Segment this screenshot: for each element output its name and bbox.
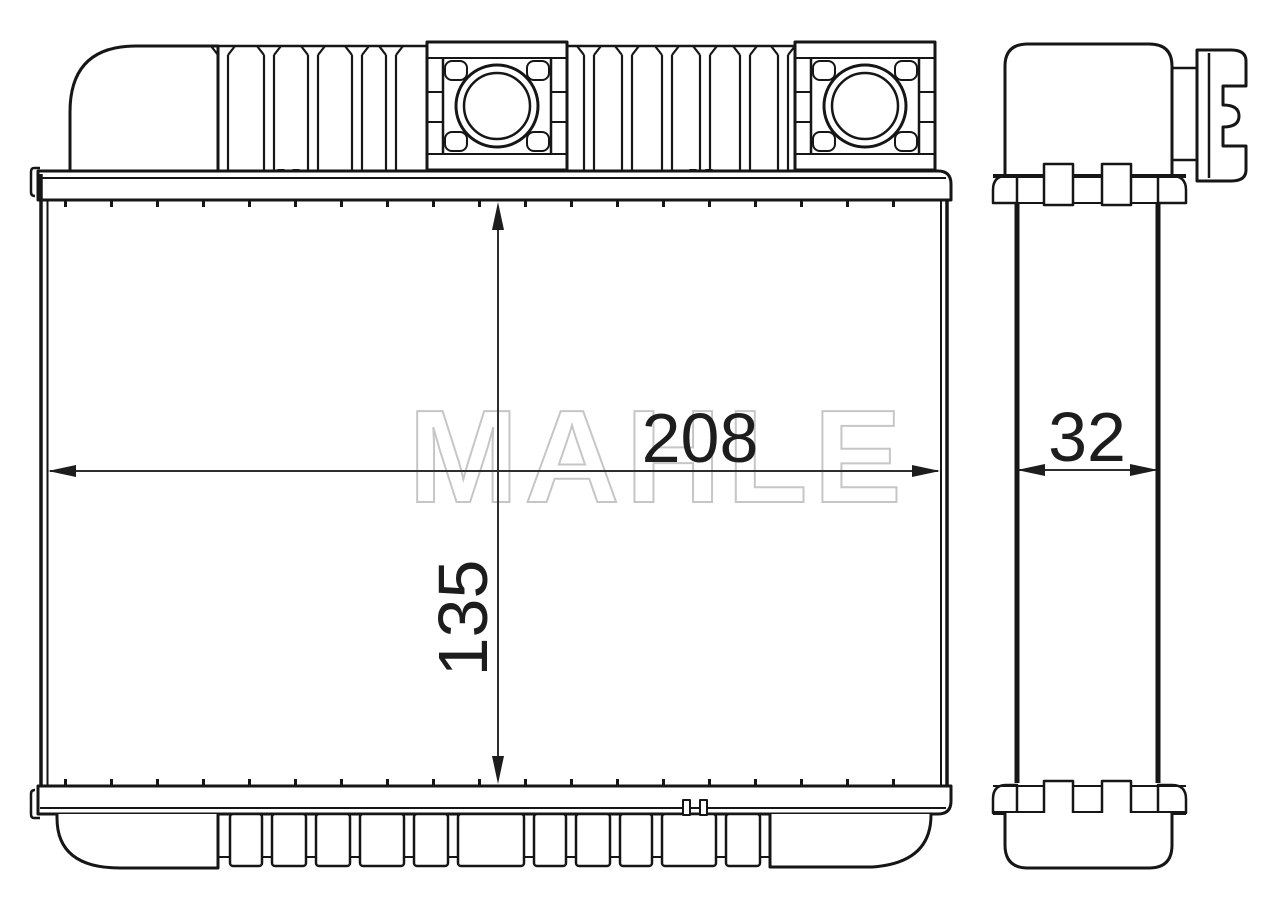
arrowhead-right	[1130, 464, 1158, 476]
front-top-tank	[70, 42, 935, 184]
header-wing-right	[1158, 785, 1186, 813]
mounting-tab	[1102, 164, 1131, 205]
mounting-tab	[1044, 164, 1073, 205]
pipe-connector-flange	[1197, 50, 1246, 181]
dimension-label-depth: 32	[1048, 398, 1126, 476]
pipe-port-left	[427, 42, 567, 170]
dimension-label-width: 208	[642, 399, 759, 477]
arrowhead-left	[48, 465, 76, 477]
side-top-tank	[1005, 44, 1246, 181]
front-top-header-plate	[31, 168, 951, 204]
arrowhead-down	[492, 756, 504, 784]
arrowhead-left	[1017, 464, 1045, 476]
bottom-tank-left-block	[57, 814, 218, 868]
side-bottom-tank	[1005, 813, 1172, 868]
front-bottom-header-plate	[31, 783, 951, 819]
top-tank-left-block	[70, 46, 218, 171]
side-core-edges	[1017, 203, 1158, 783]
pipe-port-right	[795, 42, 935, 170]
header-wing-left	[993, 176, 1017, 203]
technical-drawing-page: MAHLE	[0, 0, 1280, 909]
arrowhead-right	[912, 465, 940, 477]
arrowhead-up	[492, 202, 504, 230]
connector-stub	[1172, 68, 1197, 160]
bottom-tank-ribs	[218, 814, 770, 866]
dimension-label-height: 135	[424, 560, 502, 677]
dimension-core-depth: 32	[1017, 398, 1158, 476]
bottom-tank-right-block	[770, 814, 931, 867]
technical-drawing-canvas: MAHLE	[0, 0, 1280, 909]
header-wing-left	[993, 785, 1017, 813]
header-wing-right	[1158, 176, 1186, 203]
